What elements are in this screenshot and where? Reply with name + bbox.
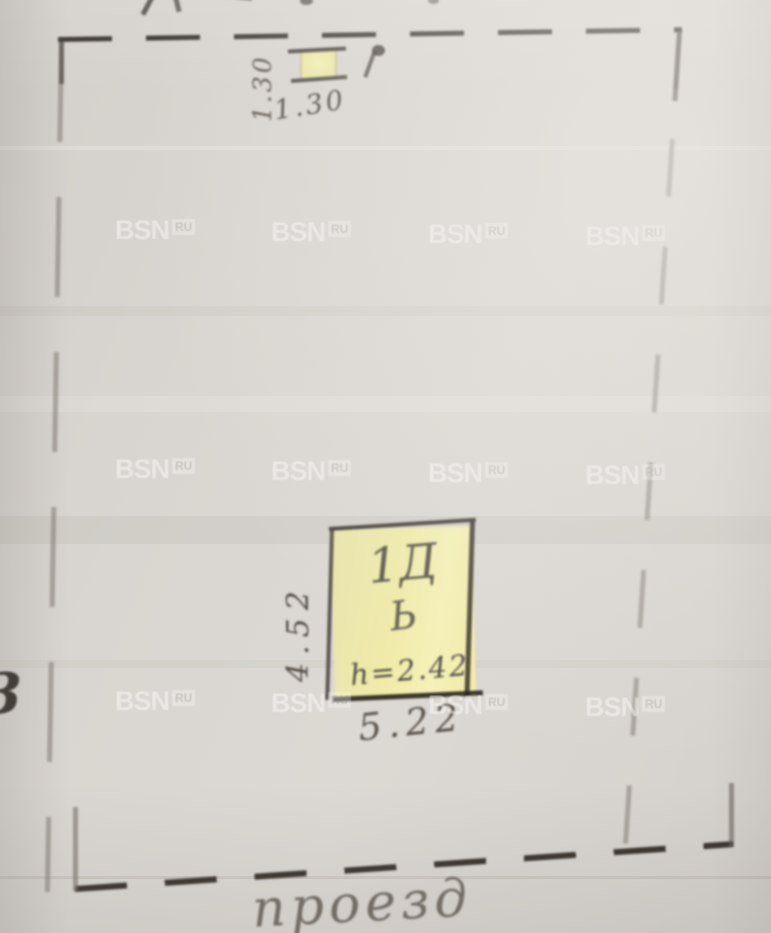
cutoff-handwriting-stroke [141, 0, 157, 16]
boundary-bottom-right-corner [729, 783, 734, 847]
cutoff-handwriting-stroke [171, 0, 181, 12]
main-structure-designation: 1Д [366, 537, 439, 591]
road-label: проезд [251, 872, 474, 933]
small-structure-side-dimension: 1.30 [250, 26, 275, 122]
main-structure-letter: Ь [388, 595, 420, 638]
pen-mark-blob [372, 45, 385, 56]
plan-drawing: 1.30 1.30 1Д Ь h=2.42 5.22 4.52 проезд 3 [0, 0, 771, 933]
small-structure-highlight [300, 51, 337, 78]
main-structure-width-dimension: 5.22 [356, 699, 466, 747]
small-structure-bottom-dimension: 1.30 [272, 87, 347, 125]
cutoff-handwriting-stroke [220, 0, 252, 1]
main-structure-depth-dimension: 4.52 [284, 542, 314, 682]
left-edge-mark: 3 [0, 666, 22, 722]
boundary-top-dashed-line [58, 27, 682, 42]
boundary-right-dashed-line [623, 31, 682, 848]
cutoff-handwriting-stroke [300, 0, 313, 5]
boundary-left-dashed-line [45, 42, 64, 892]
boundary-left-corner-dash [59, 42, 64, 84]
cutoff-handwriting-stroke [428, 0, 439, 4]
boundary-right-corner-dash [672, 31, 682, 101]
plan-photo: 1.30 1.30 1Д Ь h=2.42 5.22 4.52 проезд 3… [0, 0, 771, 933]
boundary-bottom-left-corner [73, 807, 78, 891]
